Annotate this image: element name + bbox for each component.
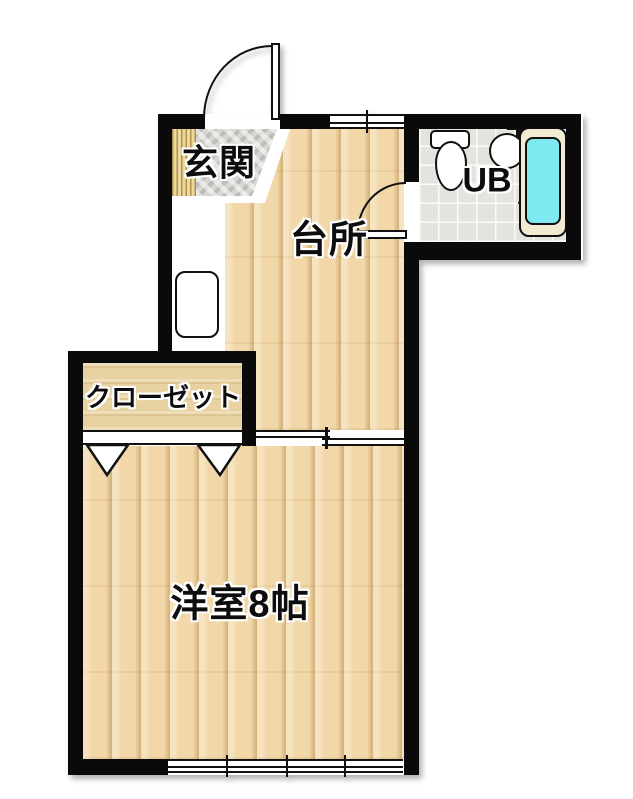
wall-ub-bottom bbox=[404, 242, 581, 260]
bottom-window-mullion-1 bbox=[226, 755, 228, 777]
floor-plan: 玄関 台所 UB クローゼット 洋室8帖 bbox=[0, 0, 633, 799]
kitchen-sink bbox=[175, 271, 219, 338]
wall-top-middle bbox=[280, 114, 330, 129]
kitchen-label: 台所 bbox=[290, 209, 368, 264]
closet-label: クローゼット bbox=[85, 378, 241, 415]
sliding-door-rail-left bbox=[256, 430, 330, 438]
unit-bath-label: UB bbox=[462, 162, 511, 201]
closet-door-track bbox=[83, 430, 242, 445]
bathtub bbox=[519, 127, 567, 237]
bottom-window-mullion-3 bbox=[344, 755, 346, 777]
wall-ub-left bbox=[404, 129, 419, 182]
sliding-door-rail-right bbox=[322, 438, 404, 446]
wall-left-upper bbox=[158, 114, 172, 363]
wall-ub-right bbox=[566, 114, 581, 260]
wall-bottom-left bbox=[68, 759, 168, 775]
western-room-label: 洋室8帖 bbox=[170, 573, 309, 628]
floor-plan-page: 玄関 台所 UB クローゼット 洋室8帖 bbox=[0, 0, 633, 799]
genkan-label: 玄関 bbox=[182, 134, 256, 186]
top-window-mullion bbox=[366, 110, 368, 133]
bathtub-water bbox=[525, 137, 561, 225]
entrance-door-leaf bbox=[271, 43, 280, 120]
wall-top-ub bbox=[404, 114, 581, 129]
wall-right bbox=[404, 260, 419, 775]
wall-closet-top bbox=[68, 351, 256, 363]
bottom-window-mullion-2 bbox=[286, 755, 288, 777]
closet-folding-doors bbox=[84, 444, 242, 478]
sliding-door-tick bbox=[325, 427, 328, 449]
entrance-door-arc bbox=[203, 45, 272, 118]
wall-closet-right bbox=[242, 363, 256, 446]
wall-left-lower bbox=[68, 351, 83, 775]
